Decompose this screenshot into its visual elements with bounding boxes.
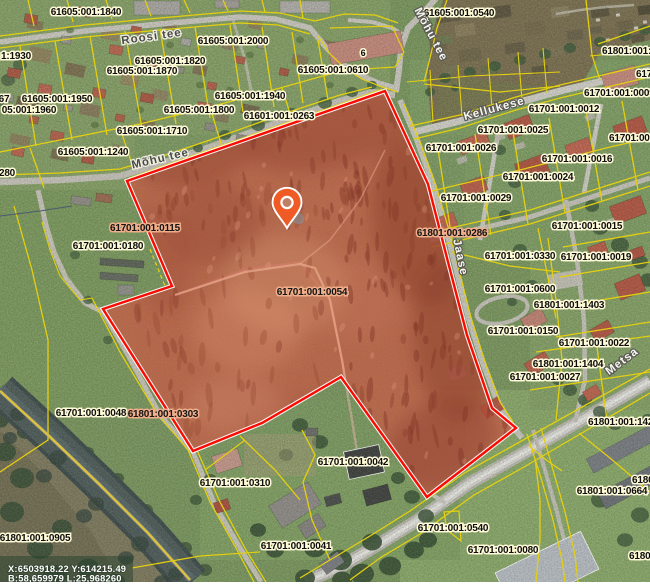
svg-text:61605:001:0540: 61605:001:0540 <box>424 8 495 19</box>
svg-text:61605:001:1840: 61605:001:1840 <box>51 7 122 18</box>
svg-text:B:58,659979 L:25,968260: B:58,659979 L:25,968260 <box>8 574 122 583</box>
svg-text:61605:001:0610: 61605:001:0610 <box>298 65 369 76</box>
svg-text:61701:001:0048: 61701:001:0048 <box>56 408 127 419</box>
svg-text:61701:001:0310: 61701:001:0310 <box>200 478 271 489</box>
svg-text:61701:001:0016: 61701:001:0016 <box>542 154 613 165</box>
svg-text:61801:001:1404: 61801:001:1404 <box>533 359 604 370</box>
svg-text:61701:001:0022: 61701:001:0022 <box>559 338 630 349</box>
svg-text:61701:001:0009: 61701:001:0009 <box>584 88 650 99</box>
svg-text:61701:001:0600: 61701:001:0600 <box>485 284 556 295</box>
svg-text:61701:001:0540: 61701:001:0540 <box>418 523 489 534</box>
svg-text:61605:001:1710: 61605:001:1710 <box>117 126 188 137</box>
svg-text:61701:001:0012: 61701:001:0012 <box>529 104 600 115</box>
svg-text:61605:001:1870: 61605:001:1870 <box>107 66 178 77</box>
svg-text:61701:001:0025: 61701:001:0025 <box>478 125 549 136</box>
svg-text:61701:001:0150: 61701:001:0150 <box>488 326 559 337</box>
svg-text:61605:001:1940: 61605:001:1940 <box>215 91 286 102</box>
svg-text:61701:001:0027: 61701:001:0027 <box>510 372 581 383</box>
svg-text:61701:001:0115: 61701:001:0115 <box>110 223 181 234</box>
svg-text:1:1930: 1:1930 <box>1 51 32 62</box>
svg-text:61801:001:0905: 61801:001:0905 <box>0 533 71 544</box>
svg-text:61701:001:0054: 61701:001:0054 <box>277 287 348 298</box>
svg-text:61801:001:0011: 61801:001:0011 <box>602 46 650 57</box>
svg-text:61701:001:0330: 61701:001:0330 <box>485 251 556 262</box>
svg-text:61701:001:0029: 61701:001:0029 <box>441 193 512 204</box>
svg-text:61801:001:0303: 61801:001:0303 <box>128 409 199 420</box>
svg-text:61701:001:0180: 61701:001:0180 <box>73 241 144 252</box>
svg-text:61801:00: 61801:00 <box>629 551 650 562</box>
svg-text:61701:001:0019: 61701:001:0019 <box>561 252 632 263</box>
svg-text:61605:001:1800: 61605:001:1800 <box>164 105 235 116</box>
svg-text:61605:001:2000: 61605:001:2000 <box>198 36 269 47</box>
svg-text:61701:001:0015: 61701:001:0015 <box>552 221 623 232</box>
svg-text:61601:001:0263: 61601:001:0263 <box>244 111 315 122</box>
svg-text:280: 280 <box>0 168 16 179</box>
svg-text:61701:0: 61701:0 <box>636 69 650 80</box>
svg-text:61701:001:0024: 61701:001:0024 <box>503 172 574 183</box>
svg-text:67: 67 <box>0 94 10 105</box>
svg-text:61801:001:1403: 61801:001:1403 <box>534 300 605 311</box>
svg-text:61701:001:0042: 61701:001:0042 <box>318 457 389 468</box>
svg-text:61605:001:1240: 61605:001:1240 <box>58 147 129 158</box>
svg-text:X:6503918.22 Y:614215.49: X:6503918.22 Y:614215.49 <box>8 564 126 574</box>
svg-text:61701:001:00: 61701:001:00 <box>609 133 650 144</box>
svg-text:61605:001:1950: 61605:001:1950 <box>22 94 93 105</box>
svg-text:6: 6 <box>361 48 366 58</box>
svg-text:05:001:1960: 05:001:1960 <box>2 105 57 116</box>
svg-text:61801:001:0664: 61801:001:0664 <box>577 486 648 497</box>
svg-text:61701:001:0080: 61701:001:0080 <box>468 545 539 556</box>
svg-text:61801:001:1422: 61801:001:1422 <box>588 417 650 428</box>
svg-text:61701:001:0041: 61701:001:0041 <box>261 541 332 552</box>
svg-text:61801:001:0286: 61801:001:0286 <box>417 228 488 239</box>
svg-text:61701:001:0026: 61701:001:0026 <box>426 143 497 154</box>
svg-text:61801: 61801 <box>632 475 650 486</box>
